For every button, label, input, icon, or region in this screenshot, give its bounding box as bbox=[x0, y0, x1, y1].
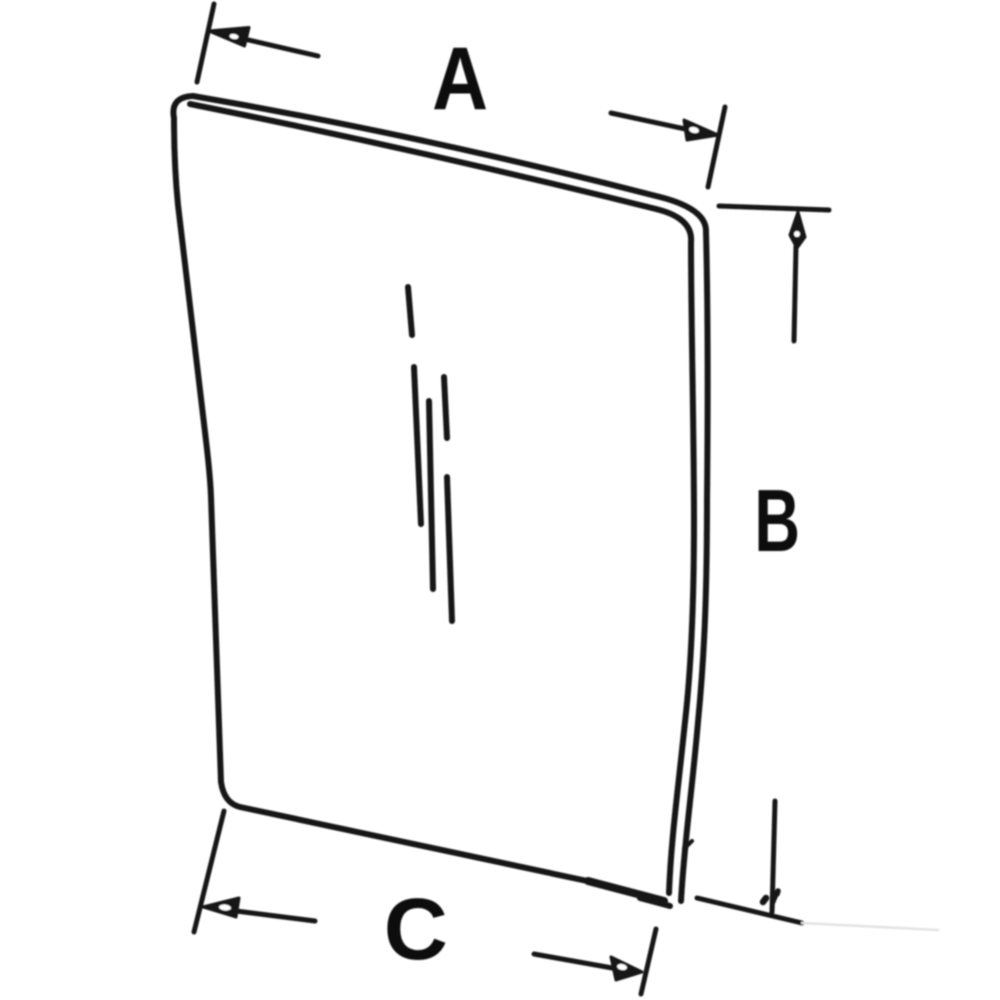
svg-text:B: B bbox=[754, 473, 800, 571]
svg-text:A: A bbox=[432, 28, 488, 128]
svg-text:C: C bbox=[384, 880, 448, 978]
